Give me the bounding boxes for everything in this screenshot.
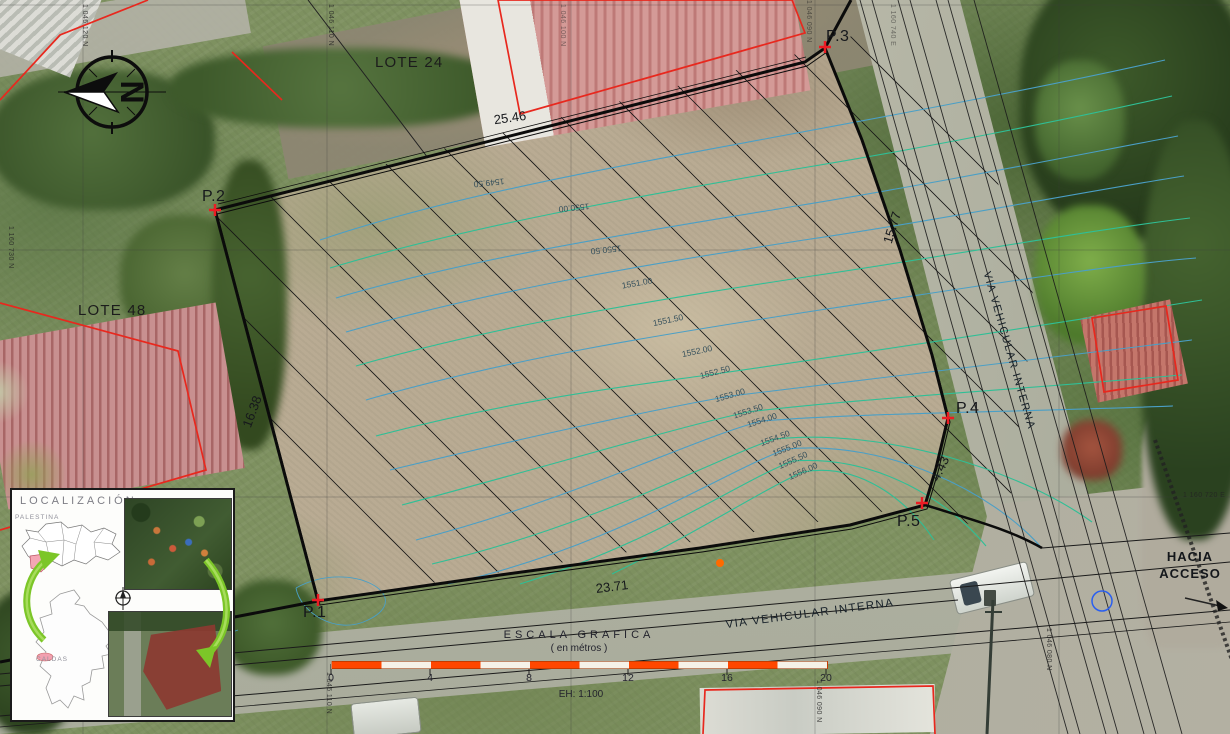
grid-label: 1 046 090 N xyxy=(815,680,822,723)
grid-label: 1 160 730 N xyxy=(7,226,14,269)
grid-label: 1 046 090 N xyxy=(805,0,812,43)
scale-tick-12: 12 xyxy=(618,672,638,684)
grid-label: 1 046 120 N xyxy=(81,4,88,47)
lot-label-48: LOTE 48 xyxy=(78,302,146,319)
dimension-23-71: 23.71 xyxy=(581,575,642,597)
grid-label: 1 046 080 N xyxy=(1045,628,1052,671)
palm xyxy=(222,580,322,675)
point-label-p3: P.3 xyxy=(826,28,849,46)
point-label-p1: P.1 xyxy=(303,604,326,622)
point-label-p4: P.4 xyxy=(956,400,979,418)
graphic-scale-bar xyxy=(331,661,828,669)
survey-marker-dot xyxy=(716,559,724,567)
scale-subtitle: ( en métros ) xyxy=(489,643,669,654)
scale-tick-16: 16 xyxy=(717,672,737,684)
access-label-line2: ACCESO xyxy=(1150,566,1230,581)
utility-box xyxy=(984,590,996,606)
lot-label-24: LOTE 24 xyxy=(375,54,443,71)
scale-tick-0: 0 xyxy=(321,672,341,684)
north-arrow: N xyxy=(56,46,172,142)
location-inset: LOCALIZACIÓN: PALESTINA CALDAS xyxy=(10,488,235,722)
grid-label: 1 160 720 E xyxy=(1183,492,1225,499)
hedge xyxy=(170,48,510,128)
point-label-p5: P.5 xyxy=(897,513,920,531)
access-label-line1: HACIA xyxy=(1150,549,1230,564)
grid-label: 1 160 740 E xyxy=(889,4,896,46)
inset-arrowhead-down xyxy=(196,646,216,668)
tree-canopy xyxy=(1035,60,1125,180)
scale-tick-8: 8 xyxy=(519,672,539,684)
scale-ratio: EH: 1:100 xyxy=(491,689,671,700)
grid-label: 1 046 100 N xyxy=(559,4,566,47)
van-bottom-left xyxy=(350,697,421,734)
site-plan-canvas: N LOTE 24 LOTE 48 P.1 P.2 P.3 P.4 P.5 25… xyxy=(0,0,1230,734)
inset-north-symbol xyxy=(112,586,134,612)
building-lote48-roof xyxy=(0,302,245,509)
point-label-p2: P.2 xyxy=(202,188,225,206)
north-letter: N xyxy=(114,80,150,103)
car-windshield xyxy=(959,580,982,606)
scale-title: ESCALA GRAFICA xyxy=(489,629,669,641)
scale-tick-4: 4 xyxy=(420,672,440,684)
scale-tick-20: 20 xyxy=(816,672,836,684)
grid-label: 1 046 110 N xyxy=(327,4,334,46)
red-bush xyxy=(1062,420,1122,480)
